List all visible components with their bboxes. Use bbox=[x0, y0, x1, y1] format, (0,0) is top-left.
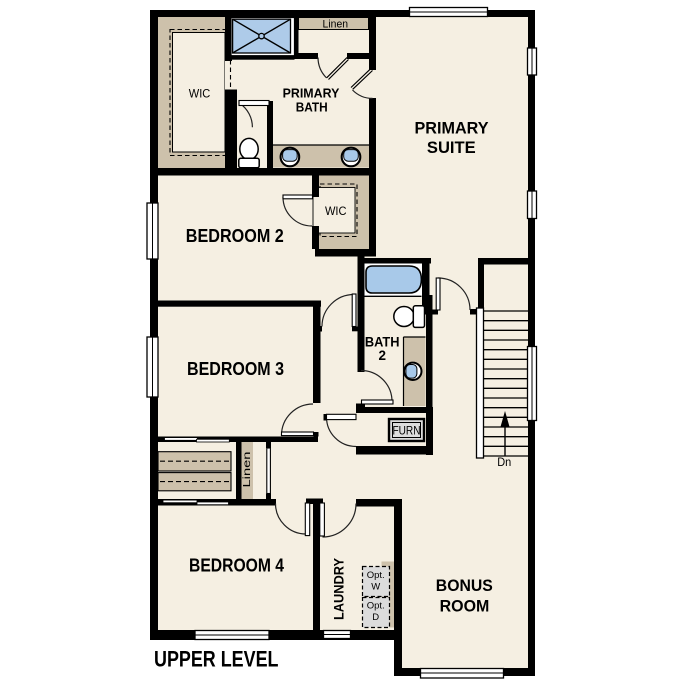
svg-text:D: D bbox=[372, 612, 379, 623]
svg-text:W: W bbox=[371, 581, 380, 592]
svg-text:WIC: WIC bbox=[325, 204, 347, 218]
svg-text:UPPER LEVEL: UPPER LEVEL bbox=[154, 647, 279, 672]
svg-text:Dn: Dn bbox=[497, 455, 511, 469]
svg-text:2: 2 bbox=[378, 348, 386, 363]
svg-text:PRIMARY: PRIMARY bbox=[415, 118, 490, 137]
svg-text:LAUNDRY: LAUNDRY bbox=[332, 558, 347, 620]
svg-text:BEDROOM 4: BEDROOM 4 bbox=[189, 556, 284, 576]
svg-text:BATH: BATH bbox=[296, 101, 328, 115]
svg-text:Linen: Linen bbox=[241, 451, 253, 487]
svg-text:Linen: Linen bbox=[323, 18, 349, 30]
svg-text:BONUS: BONUS bbox=[436, 577, 493, 595]
svg-text:WIC: WIC bbox=[189, 87, 211, 101]
svg-text:PRIMARY: PRIMARY bbox=[283, 87, 340, 101]
svg-text:Opt.: Opt. bbox=[367, 570, 385, 581]
svg-text:Opt.: Opt. bbox=[367, 601, 385, 612]
svg-text:SUITE: SUITE bbox=[427, 138, 476, 157]
svg-text:ROOM: ROOM bbox=[440, 597, 490, 615]
svg-text:BEDROOM 2: BEDROOM 2 bbox=[186, 226, 284, 246]
svg-text:BEDROOM 3: BEDROOM 3 bbox=[187, 359, 284, 379]
svg-text:FURN: FURN bbox=[393, 426, 421, 438]
